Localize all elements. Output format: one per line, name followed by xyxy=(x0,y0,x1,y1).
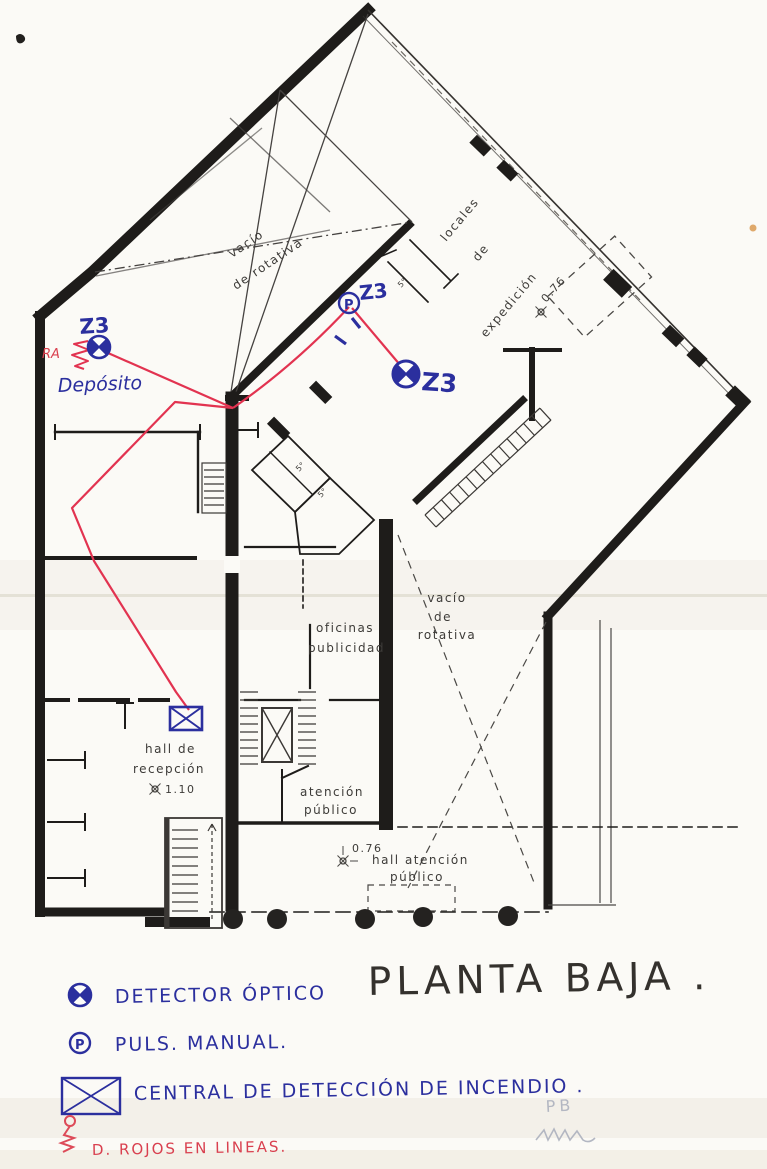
ra-note: RA xyxy=(42,347,60,362)
legend-optical-detector-icon xyxy=(69,984,91,1006)
pencil-initials: PB xyxy=(545,1096,575,1116)
label-atencion-2: público xyxy=(304,803,358,817)
label-hall-atencion-1: hall atención xyxy=(372,853,469,867)
legend-item-red-wiring: D. ROJOS EN LINEAS. xyxy=(92,1138,288,1159)
floor-plan-svg: vacío de rotativa locales de expedición … xyxy=(0,0,767,1169)
legend-item-pushbutton: PULS. MANUAL. xyxy=(115,1031,289,1056)
optical-detector-symbol-1 xyxy=(88,336,110,358)
optical-detector-symbol-2 xyxy=(393,361,419,387)
legend-item-detector: DETECTOR ÓPTICO xyxy=(115,980,327,1008)
label-hall-recepcion-level: 1.10 xyxy=(165,783,196,796)
deposito-note: Depósito xyxy=(57,372,142,397)
page-title: PLANTA BAJA . xyxy=(367,954,710,1005)
label-oficinas-2: publicidad xyxy=(308,641,385,655)
label-rotativa-e-2: de xyxy=(434,610,452,624)
label-rotativa-e-3: rotativa xyxy=(418,628,477,642)
zone-label-3: Z3 xyxy=(421,367,458,398)
zone-label-1: Z3 xyxy=(79,313,110,339)
scanned-plan-document: vacío de rotativa locales de expedición … xyxy=(0,0,767,1169)
label-hall-recepcion-1: hall de xyxy=(145,742,196,756)
title-block: PLANTA BAJA . xyxy=(367,954,710,1005)
pushbutton-letter: P xyxy=(344,298,354,313)
label-rotativa-e-1: vacío xyxy=(427,591,466,605)
label-oficinas-1: oficinas xyxy=(316,621,374,635)
zone-label-2: Z3 xyxy=(358,278,389,305)
label-hall-recepcion-2: recepción xyxy=(133,762,205,776)
label-atencion-1: atención xyxy=(300,785,364,799)
label-hall-atencion-2: público xyxy=(390,870,444,884)
legend-pushbutton-letter: P xyxy=(75,1038,85,1053)
orange-speck xyxy=(750,225,757,232)
